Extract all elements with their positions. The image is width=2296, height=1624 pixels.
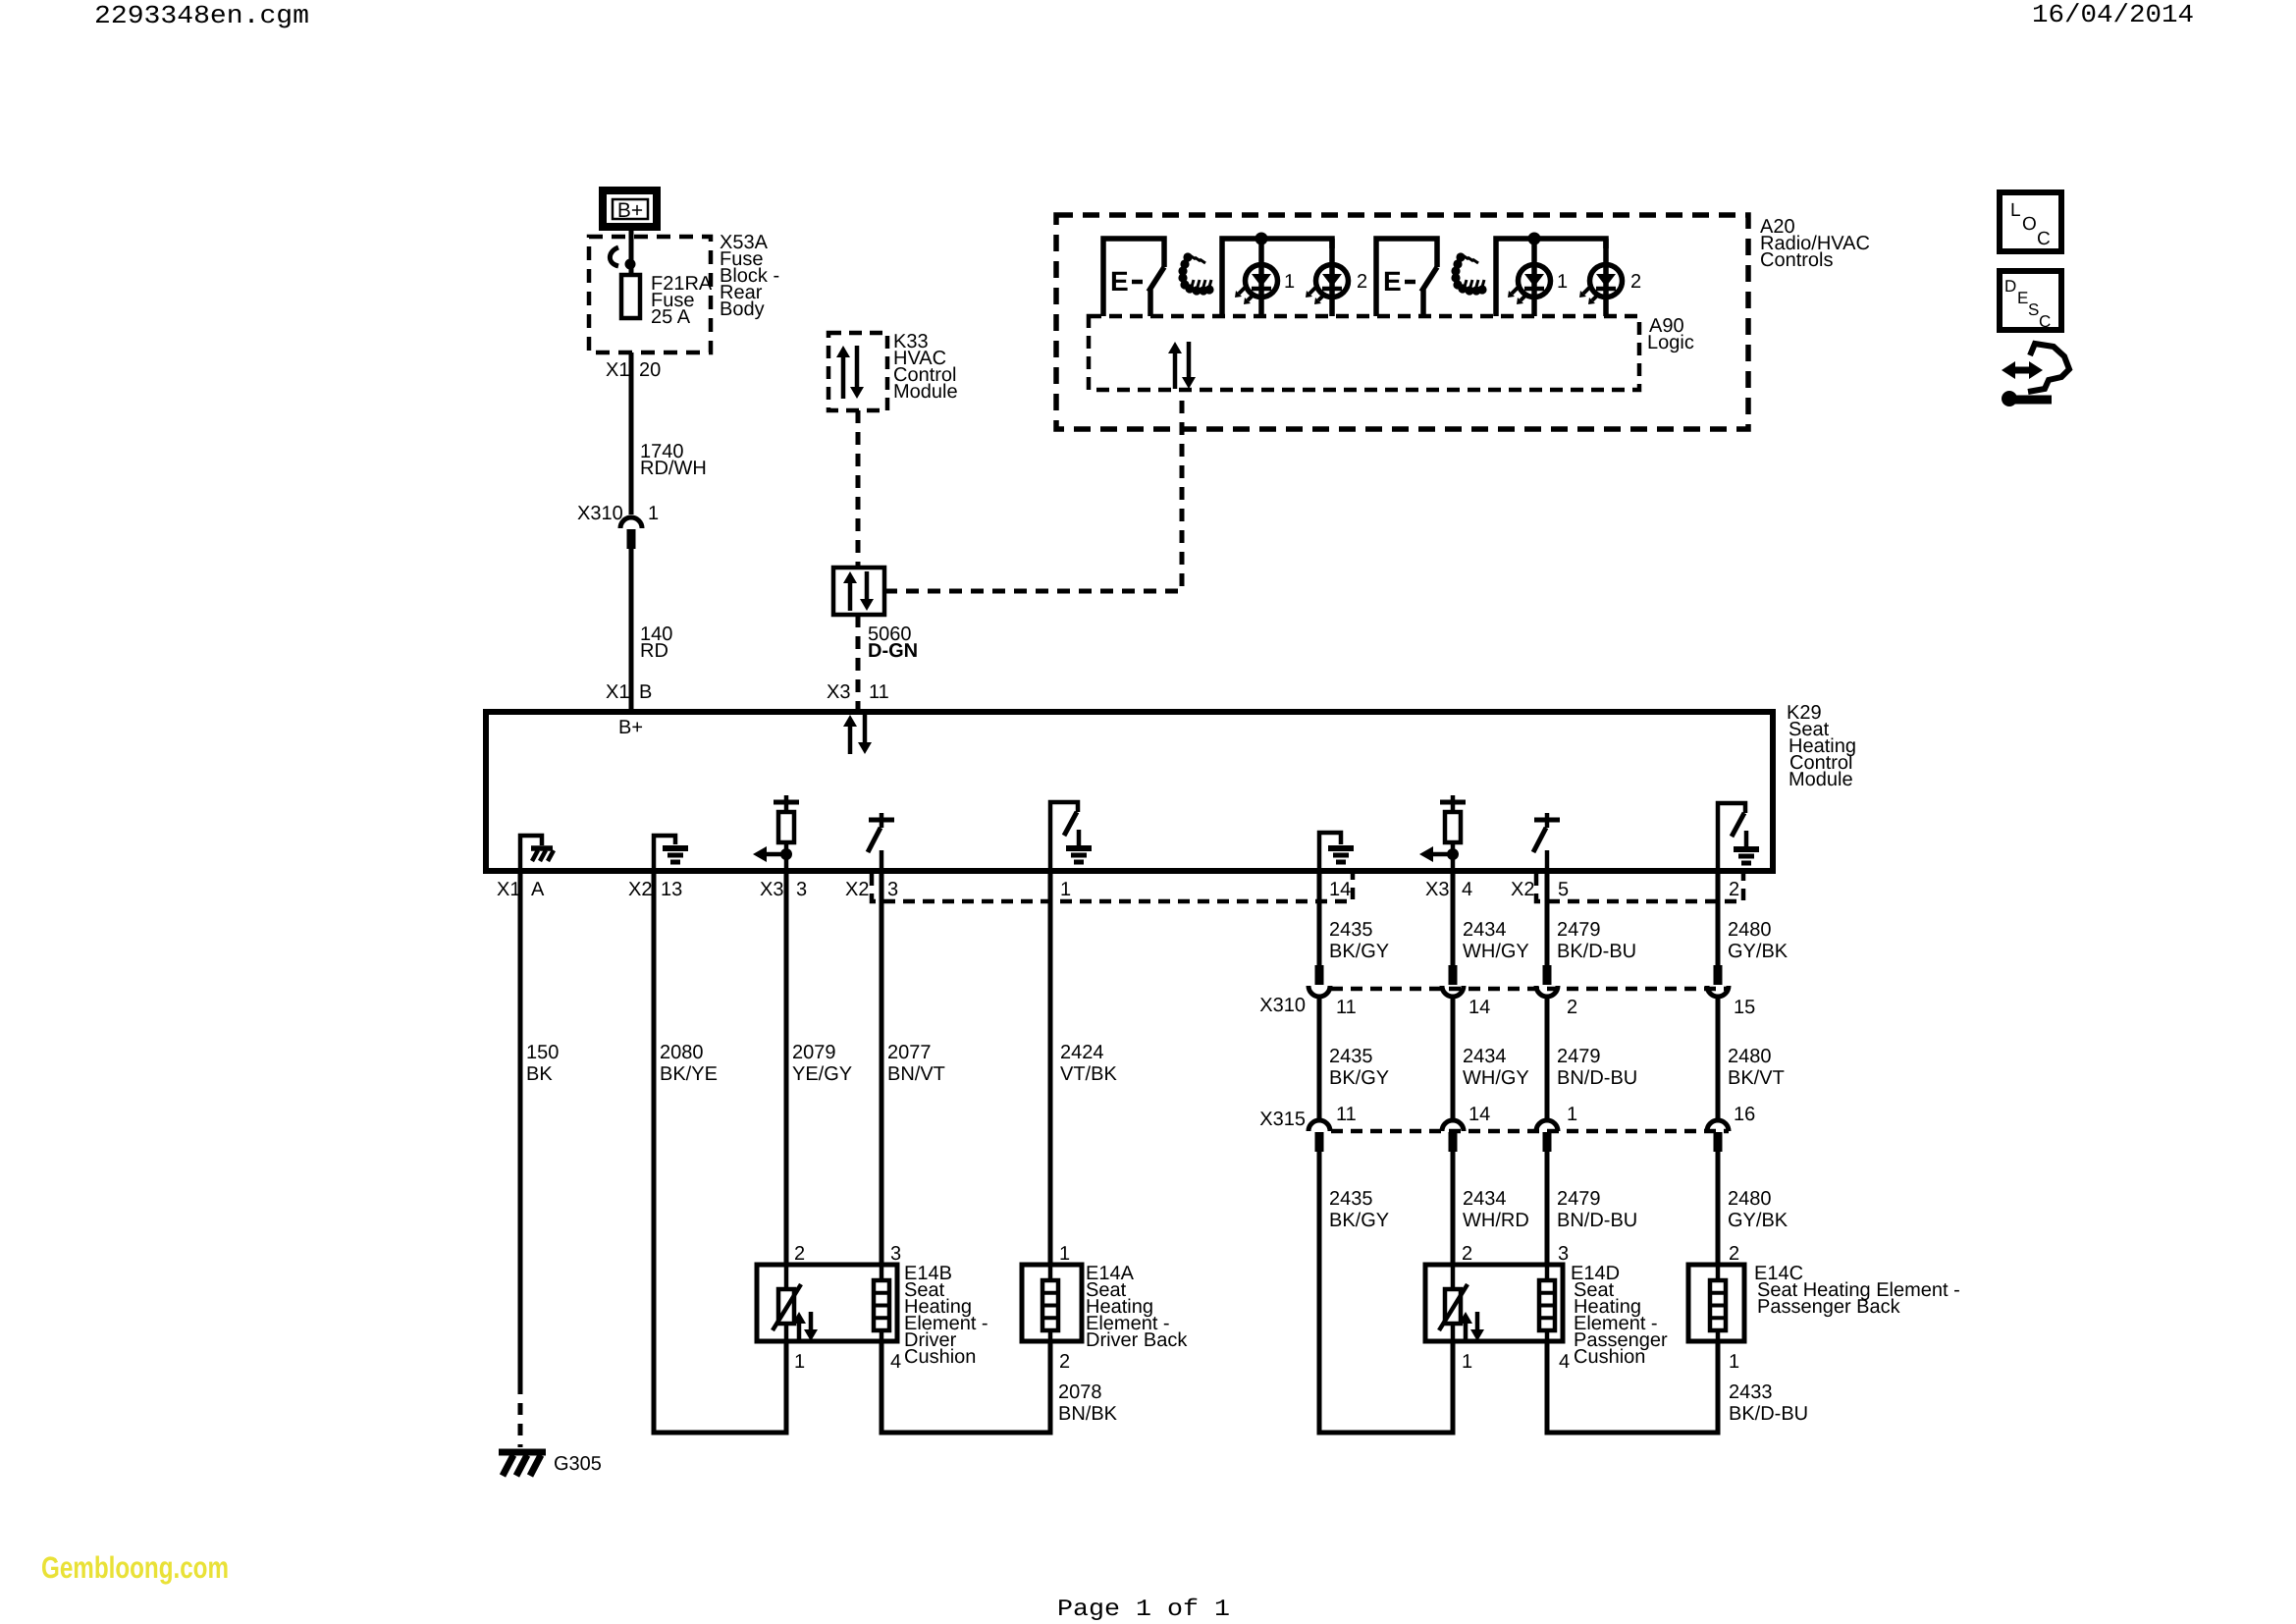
svg-text:2424: 2424	[1060, 1042, 1104, 1063]
svg-text:1: 1	[1060, 879, 1071, 900]
svg-text:Cushion: Cushion	[904, 1346, 976, 1368]
svg-text:D-GN: D-GN	[868, 640, 918, 662]
svg-text:3: 3	[887, 879, 898, 900]
svg-text:BK/D-BU: BK/D-BU	[1729, 1403, 1808, 1425]
svg-text:16/04/2014: 16/04/2014	[2032, 0, 2194, 29]
svg-text:GY/BK: GY/BK	[1728, 1210, 1789, 1231]
svg-text:2293348en.cgm: 2293348en.cgm	[94, 1, 309, 30]
svg-text:X3: X3	[1425, 879, 1449, 900]
svg-text:5: 5	[1558, 879, 1569, 900]
svg-text:X1: X1	[497, 879, 520, 900]
svg-text:C: C	[2039, 312, 2051, 331]
svg-text:1: 1	[1567, 1104, 1577, 1125]
svg-text:BK/D-BU: BK/D-BU	[1557, 941, 1636, 962]
svg-text:BN/BK: BN/BK	[1058, 1403, 1118, 1425]
svg-text:GY/BK: GY/BK	[1728, 941, 1789, 962]
svg-text:BK/YE: BK/YE	[660, 1063, 718, 1085]
svg-text:14: 14	[1329, 879, 1351, 900]
svg-text:WH/GY: WH/GY	[1463, 941, 1529, 962]
svg-text:X3: X3	[760, 879, 783, 900]
svg-text:RD/WH: RD/WH	[640, 458, 707, 479]
svg-text:2434: 2434	[1463, 1188, 1507, 1210]
svg-text:S: S	[2028, 300, 2039, 319]
svg-text:Module: Module	[893, 381, 958, 403]
svg-text:150: 150	[526, 1042, 559, 1063]
svg-text:2433: 2433	[1729, 1381, 1773, 1403]
svg-text:2479: 2479	[1557, 1046, 1601, 1067]
svg-text:15: 15	[1734, 997, 1755, 1018]
svg-text:X310: X310	[577, 503, 623, 524]
svg-text:4: 4	[890, 1351, 901, 1373]
svg-text:1: 1	[1284, 271, 1295, 293]
svg-text:1: 1	[1462, 1351, 1472, 1373]
svg-text:2480: 2480	[1728, 919, 1772, 941]
svg-text:2480: 2480	[1728, 1046, 1772, 1067]
svg-text:2479: 2479	[1557, 919, 1601, 941]
svg-text:13: 13	[661, 879, 682, 900]
svg-text:BK/GY: BK/GY	[1329, 1210, 1389, 1231]
svg-text:BN/D-BU: BN/D-BU	[1557, 1067, 1637, 1089]
svg-text:2: 2	[1059, 1351, 1070, 1373]
svg-text:2: 2	[1567, 997, 1577, 1018]
svg-text:X1: X1	[606, 359, 629, 381]
svg-text:X1: X1	[606, 681, 629, 703]
svg-text:2: 2	[1357, 271, 1367, 293]
svg-text:11: 11	[1336, 1104, 1357, 1125]
svg-text:2: 2	[1729, 1243, 1739, 1265]
svg-text:Gembloong.com: Gembloong.com	[41, 1550, 229, 1585]
svg-text:4: 4	[1462, 879, 1472, 900]
svg-text:BK: BK	[526, 1063, 553, 1085]
svg-text:Driver Back: Driver Back	[1086, 1329, 1188, 1351]
svg-text:Body: Body	[720, 298, 765, 320]
svg-text:BK/GY: BK/GY	[1329, 941, 1389, 962]
svg-text:D: D	[2004, 277, 2016, 296]
svg-text:E: E	[1110, 266, 1129, 297]
svg-text:BN/VT: BN/VT	[887, 1063, 945, 1085]
svg-text:E: E	[1383, 266, 1402, 297]
svg-text:Module: Module	[1789, 769, 1853, 790]
svg-text:B+: B+	[617, 199, 643, 222]
svg-text:1: 1	[648, 503, 659, 524]
svg-text:Logic: Logic	[1647, 332, 1694, 353]
svg-text:2435: 2435	[1329, 919, 1373, 941]
svg-text:14: 14	[1468, 997, 1490, 1018]
svg-text:16: 16	[1734, 1104, 1755, 1125]
svg-text:WH/GY: WH/GY	[1463, 1067, 1529, 1089]
svg-text:2: 2	[794, 1243, 805, 1265]
svg-text:2078: 2078	[1058, 1381, 1102, 1403]
svg-text:A: A	[531, 879, 545, 900]
svg-text:11: 11	[869, 681, 889, 703]
svg-text:O: O	[2022, 214, 2037, 235]
svg-text:3: 3	[890, 1243, 901, 1265]
svg-text:2479: 2479	[1557, 1188, 1601, 1210]
svg-text:1: 1	[1059, 1243, 1070, 1265]
svg-text:Page 1 of 1: Page 1 of 1	[1057, 1597, 1230, 1623]
svg-text:2079: 2079	[792, 1042, 836, 1063]
svg-text:20: 20	[639, 359, 661, 381]
svg-text:Cushion: Cushion	[1574, 1346, 1645, 1368]
svg-text:2434: 2434	[1463, 919, 1507, 941]
svg-text:BN/D-BU: BN/D-BU	[1557, 1210, 1637, 1231]
svg-text:X2: X2	[845, 879, 869, 900]
svg-text:1: 1	[1729, 1351, 1739, 1373]
svg-text:2080: 2080	[660, 1042, 704, 1063]
svg-text:3: 3	[1558, 1243, 1569, 1265]
svg-text:L: L	[2010, 200, 2021, 221]
svg-text:2077: 2077	[887, 1042, 932, 1063]
svg-text:YE/GY: YE/GY	[792, 1063, 852, 1085]
svg-text:1: 1	[794, 1351, 805, 1373]
svg-text:25 A: 25 A	[651, 306, 691, 328]
svg-text:1: 1	[1557, 271, 1568, 293]
svg-text:2: 2	[1462, 1243, 1472, 1265]
svg-text:11: 11	[1336, 997, 1357, 1018]
svg-text:C: C	[2037, 229, 2051, 249]
svg-text:2: 2	[1729, 879, 1739, 900]
svg-text:X310: X310	[1259, 995, 1306, 1016]
svg-text:X315: X315	[1259, 1109, 1306, 1130]
svg-text:Passenger Back: Passenger Back	[1757, 1296, 1901, 1318]
svg-text:X2: X2	[1511, 879, 1534, 900]
svg-text:RD: RD	[640, 640, 668, 662]
svg-text:14: 14	[1468, 1104, 1490, 1125]
svg-text:2: 2	[1630, 271, 1641, 293]
svg-text:E: E	[2017, 289, 2028, 307]
svg-text:2434: 2434	[1463, 1046, 1507, 1067]
svg-text:BK/VT: BK/VT	[1728, 1067, 1785, 1089]
svg-text:4: 4	[1559, 1351, 1570, 1373]
svg-text:BK/GY: BK/GY	[1329, 1067, 1389, 1089]
svg-text:3: 3	[796, 879, 807, 900]
svg-text:VT/BK: VT/BK	[1060, 1063, 1117, 1085]
svg-text:Controls: Controls	[1760, 249, 1833, 271]
svg-text:X2: X2	[628, 879, 652, 900]
svg-text:B+: B+	[618, 717, 643, 738]
svg-text:2435: 2435	[1329, 1046, 1373, 1067]
svg-text:WH/RD: WH/RD	[1463, 1210, 1529, 1231]
svg-text:2435: 2435	[1329, 1188, 1373, 1210]
svg-text:G305: G305	[554, 1453, 602, 1475]
svg-text:X3: X3	[827, 681, 850, 703]
svg-text:2480: 2480	[1728, 1188, 1772, 1210]
svg-text:B: B	[639, 681, 652, 703]
